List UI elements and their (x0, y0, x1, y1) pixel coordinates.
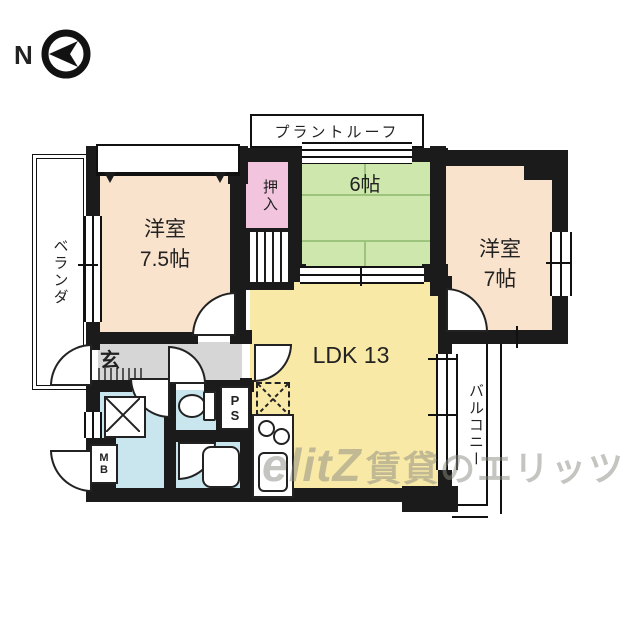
plant-roof-label: プラントルーフ (274, 121, 399, 142)
western-7-5-name: 洋室 (144, 213, 186, 243)
western-7-name: 洋室 (479, 233, 521, 263)
wall (552, 154, 568, 234)
mb-label: MB (98, 452, 110, 476)
bathtub (202, 446, 240, 488)
ps-label: PS (228, 393, 243, 423)
ldk-label: LDK 13 (313, 342, 390, 369)
window-tick (428, 414, 456, 416)
closet-label: 押入 (252, 166, 280, 226)
pipe-space: PS (220, 386, 250, 430)
window (84, 216, 102, 322)
tatami-line (300, 240, 432, 242)
storage-striped-box (244, 228, 292, 286)
entrance-label: 玄 (100, 344, 120, 373)
wall (240, 330, 252, 344)
mb-door-swing (50, 450, 92, 492)
toilet-tank-icon (203, 391, 216, 421)
western-7-5-size: 7.5帖 (140, 243, 190, 273)
meter-box: MB (90, 444, 118, 484)
western-7-label: 洋室 7帖 (458, 232, 542, 294)
sliding-door-tick (360, 268, 362, 286)
washing-machine-pan (104, 396, 146, 438)
window-tick (78, 264, 98, 266)
wall (86, 380, 132, 392)
sliding-door (300, 266, 424, 284)
floorplan: N プラントルーフ ベランダ (0, 0, 640, 640)
watermark-text: 賃貸のエリッツ (366, 450, 625, 489)
bay-window-mark-icon (104, 172, 116, 183)
window-tick (546, 262, 570, 264)
watermark: elitZ 賃貸のエリッツ (262, 438, 625, 492)
plant-roof-louver-window (302, 142, 412, 164)
tatami-6-label: 6帖 (349, 168, 380, 197)
western-7-size: 7帖 (484, 263, 517, 293)
toilet-bowl-icon (178, 394, 206, 418)
refrigerator-space (256, 382, 290, 416)
compass-north-label: N (14, 40, 33, 71)
wall (86, 332, 198, 344)
compass-left-arrow-icon (38, 26, 94, 87)
watermark-logo: elitZ (262, 439, 362, 491)
tatami-6-label-wrap: 6帖 (300, 168, 430, 196)
bay-window-mark-icon (214, 172, 226, 183)
window (84, 412, 102, 438)
tatami-line (364, 242, 366, 266)
western-7-5-label: 洋室 7.5帖 (105, 212, 225, 274)
wall-tick (516, 326, 518, 348)
window-tick (428, 358, 456, 360)
wall (444, 330, 568, 344)
window (550, 232, 572, 296)
ldk-label-wrap: LDK 13 (296, 340, 406, 370)
veranda-label: ベランダ (50, 238, 71, 306)
